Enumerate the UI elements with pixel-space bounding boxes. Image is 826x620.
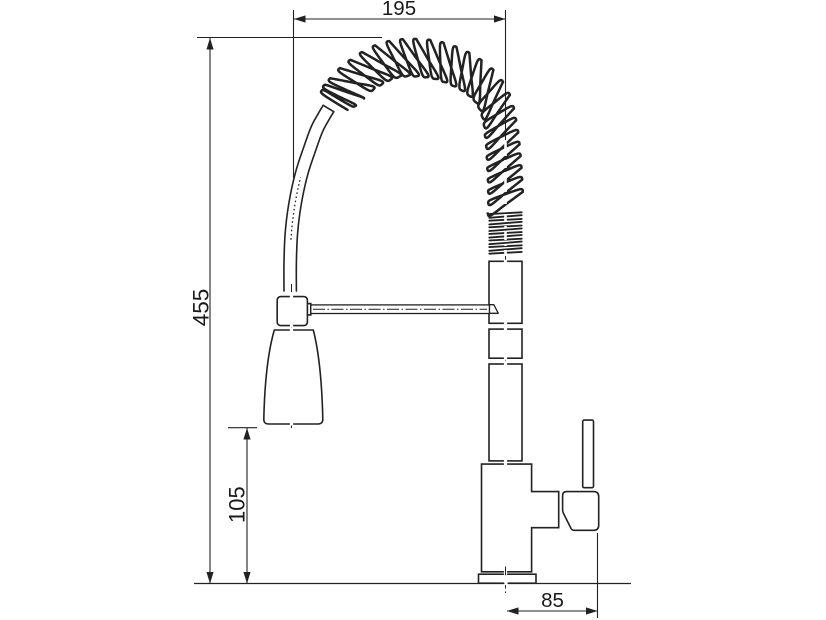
svg-text:105: 105: [225, 486, 250, 523]
svg-text:455: 455: [188, 289, 213, 327]
svg-text:85: 85: [541, 589, 564, 612]
svg-text:195: 195: [382, 0, 416, 20]
